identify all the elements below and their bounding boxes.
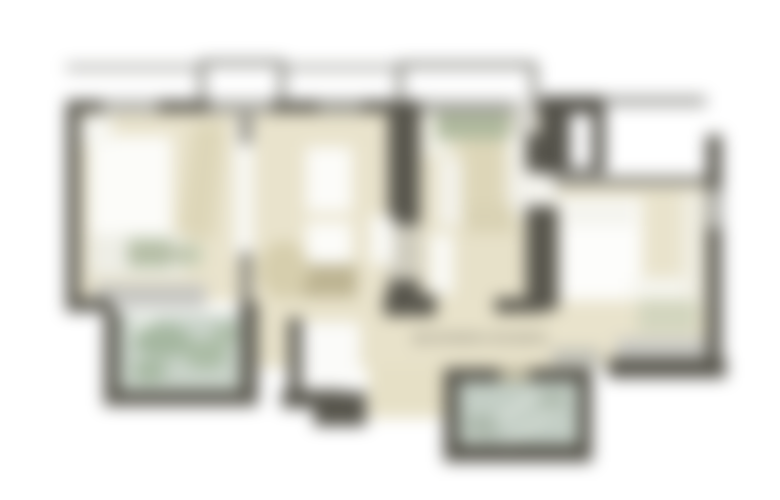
svg-text:SCHLAFEN: SCHLAFEN: [128, 249, 187, 261]
svg-text:WOHNEN-ESSEN: WOHNEN-ESSEN: [413, 330, 547, 346]
